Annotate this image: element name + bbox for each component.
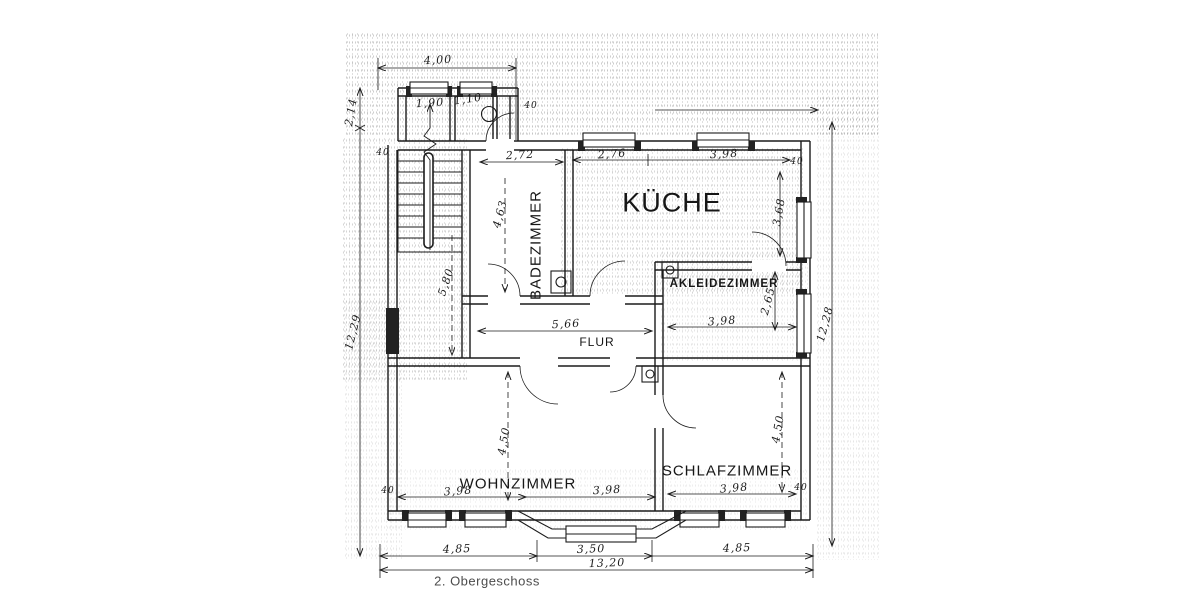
room-label-kueche: KÜCHE	[622, 188, 722, 219]
room-label-badezimmer: BADEZIMMER	[528, 190, 545, 300]
dim-bottom-right: 4,85	[723, 541, 752, 555]
dim-annex-width: 4,00	[423, 53, 452, 67]
room-label-wohnzimmer: WOHNZIMMER	[460, 476, 577, 493]
dim-kueche-width: 3,98	[709, 147, 738, 161]
dim-bottom-left: 4,85	[443, 542, 472, 556]
floor-caption: 2. Obergeschoss	[434, 574, 540, 589]
room-label-schlafzimmer: SCHLAFZIMMER	[662, 463, 792, 480]
dim-wc-left-width: 1,90	[415, 96, 444, 110]
dim-bottom-total: 13,20	[589, 556, 626, 570]
washbasin-icon	[551, 271, 571, 293]
dim-wall-thickness: 40	[381, 486, 394, 496]
dim-bottom-center: 3,50	[577, 542, 606, 556]
dim-wohn-seg1: 3,98	[443, 484, 472, 499]
dim-akleide-width: 3,98	[707, 314, 736, 329]
room-label-akleidezimmer: AKLEIDEZIMMER	[670, 278, 779, 290]
floorplan-drawing	[0, 0, 1200, 600]
dim-wall-thickness: 40	[524, 101, 537, 111]
dim-wall-thickness: 40	[376, 148, 389, 158]
wc-toilet-icon	[482, 107, 497, 122]
floor-plan-scan: KÜCHE BADEZIMMER AKLEIDEZIMMER FLUR WOHN…	[0, 0, 1200, 600]
dim-wall-thickness: 40	[790, 157, 803, 167]
dim-kueche-seg1: 2,76	[597, 147, 626, 162]
room-label-flur: FLUR	[579, 335, 614, 349]
dim-bad-width: 2,72	[505, 148, 534, 162]
dim-wall-thickness: 40	[794, 483, 807, 493]
dim-wohn-seg2: 3,98	[592, 483, 621, 497]
dim-schlaf-width: 3,98	[719, 480, 749, 495]
stairs	[398, 104, 462, 252]
dim-flur-length: 5,66	[551, 317, 580, 331]
